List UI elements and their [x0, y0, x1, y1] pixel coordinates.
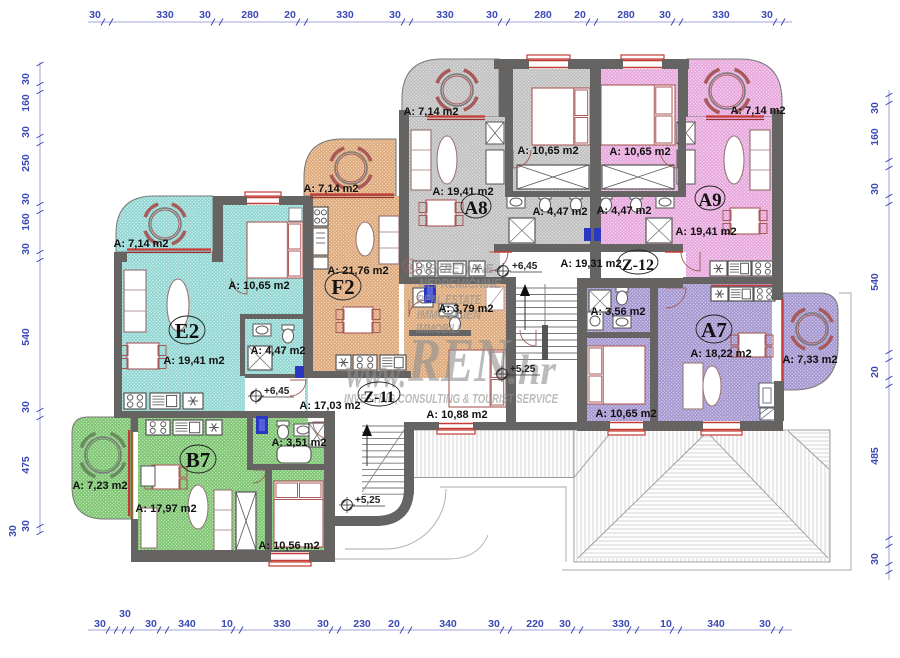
svg-text:30: 30	[20, 520, 32, 532]
svg-text:230: 230	[353, 618, 371, 630]
svg-text:30: 30	[759, 618, 771, 630]
svg-text:485: 485	[869, 447, 881, 465]
svg-text:30: 30	[7, 525, 19, 537]
svg-text:30: 30	[869, 102, 881, 114]
svg-text:20: 20	[284, 9, 296, 21]
svg-text:220: 220	[526, 618, 544, 630]
svg-text:30: 30	[869, 183, 881, 195]
svg-text:160: 160	[869, 128, 881, 146]
svg-text:A: 4,47 m2: A: 4,47 m2	[596, 205, 651, 217]
svg-text:160: 160	[20, 94, 32, 112]
svg-text:A: 10,65 m2: A: 10,65 m2	[228, 280, 289, 292]
svg-text:A: 4,47 m2: A: 4,47 m2	[250, 345, 305, 357]
svg-text:A9: A9	[698, 190, 721, 211]
svg-text:30: 30	[20, 243, 32, 255]
svg-text:A: 10,65 m2: A: 10,65 m2	[609, 146, 670, 158]
svg-text:340: 340	[439, 618, 457, 630]
svg-text:+5,25: +5,25	[355, 495, 381, 506]
svg-text:A: 10,65 m2: A: 10,65 m2	[595, 408, 656, 420]
svg-text:20: 20	[574, 9, 586, 21]
svg-text:A: 4,47 m2: A: 4,47 m2	[532, 206, 587, 218]
svg-text:A: 3,79 m2: A: 3,79 m2	[438, 303, 493, 315]
svg-text:30: 30	[761, 9, 773, 21]
svg-text:+6,45: +6,45	[512, 261, 538, 272]
svg-text:E2: E2	[175, 319, 200, 343]
svg-text:A: 7,14 m2: A: 7,14 m2	[403, 106, 458, 118]
svg-text:540: 540	[20, 328, 32, 346]
svg-text:A: 17,03 m2: A: 17,03 m2	[299, 400, 360, 412]
svg-text:330: 330	[273, 618, 291, 630]
svg-text:330: 330	[712, 9, 730, 21]
svg-text:30: 30	[119, 608, 131, 620]
svg-text:30: 30	[20, 401, 32, 413]
svg-text:30: 30	[869, 553, 881, 565]
svg-text:A: 19,31 m2: A: 19,31 m2	[560, 258, 621, 270]
svg-text:A: 7,14 m2: A: 7,14 m2	[730, 105, 785, 117]
svg-text:A: 10,88 m2: A: 10,88 m2	[426, 409, 487, 421]
svg-text:A: 19,41 m2: A: 19,41 m2	[163, 355, 224, 367]
svg-text:A: 7,14 m2: A: 7,14 m2	[303, 183, 358, 195]
svg-text:REN: REN	[407, 327, 512, 395]
svg-text:F2: F2	[331, 275, 354, 299]
svg-text:A: 10,65 m2: A: 10,65 m2	[517, 145, 578, 157]
svg-text:A: 10,56 m2: A: 10,56 m2	[258, 540, 319, 552]
svg-text:30: 30	[659, 9, 671, 21]
svg-text:340: 340	[707, 618, 725, 630]
svg-text:475: 475	[20, 456, 32, 474]
svg-text:30: 30	[89, 9, 101, 21]
svg-text:R: R	[407, 262, 414, 272]
svg-text:540: 540	[869, 273, 881, 291]
svg-text:A7: A7	[701, 318, 727, 342]
svg-text:Z-12: Z-12	[622, 257, 654, 274]
svg-text:Z-11: Z-11	[363, 389, 394, 406]
svg-text:330: 330	[436, 9, 454, 21]
svg-text:30: 30	[20, 193, 32, 205]
svg-text:A8: A8	[464, 198, 487, 219]
svg-text:A: 3,51 m2: A: 3,51 m2	[271, 437, 326, 449]
svg-text:A: 18,22 m2: A: 18,22 m2	[690, 348, 751, 360]
svg-text:10: 10	[660, 618, 672, 630]
svg-text:30: 30	[199, 9, 211, 21]
svg-text:160: 160	[20, 213, 32, 231]
svg-text:30: 30	[317, 618, 329, 630]
svg-text:340: 340	[178, 618, 196, 630]
svg-text:20: 20	[388, 618, 400, 630]
svg-text:30: 30	[145, 618, 157, 630]
svg-text:A: 7,33 m2: A: 7,33 m2	[782, 354, 837, 366]
svg-text:30: 30	[559, 618, 571, 630]
svg-text:330: 330	[336, 9, 354, 21]
svg-text:A: 19,41 m2: A: 19,41 m2	[675, 226, 736, 238]
svg-text:A: 17,97 m2: A: 17,97 m2	[135, 503, 196, 515]
svg-text:30: 30	[94, 618, 106, 630]
svg-text:20: 20	[869, 366, 881, 378]
svg-text:280: 280	[617, 9, 635, 21]
svg-text:250: 250	[20, 154, 32, 172]
svg-text:NEPREMIČNINE: NEPREMIČNINE	[419, 276, 502, 291]
svg-text:280: 280	[241, 9, 259, 21]
svg-text:330: 330	[612, 618, 630, 630]
svg-text:+5,25: +5,25	[510, 364, 536, 375]
svg-text:30: 30	[389, 9, 401, 21]
svg-text:330: 330	[156, 9, 174, 21]
svg-text:30: 30	[20, 73, 32, 85]
svg-text:A: 7,23 m2: A: 7,23 m2	[72, 480, 127, 492]
svg-text:30: 30	[486, 9, 498, 21]
svg-text:A: 7,14 m2: A: 7,14 m2	[113, 238, 168, 250]
svg-text:10: 10	[221, 618, 233, 630]
svg-text:NEKRETNINE: NEKRETNINE	[420, 262, 494, 276]
svg-text:A: 3,56 m2: A: 3,56 m2	[590, 306, 645, 318]
svg-text:30: 30	[20, 126, 32, 138]
svg-text:280: 280	[534, 9, 552, 21]
svg-text:30: 30	[488, 618, 500, 630]
svg-text:B7: B7	[186, 448, 211, 472]
svg-text:+6,45: +6,45	[264, 386, 290, 397]
